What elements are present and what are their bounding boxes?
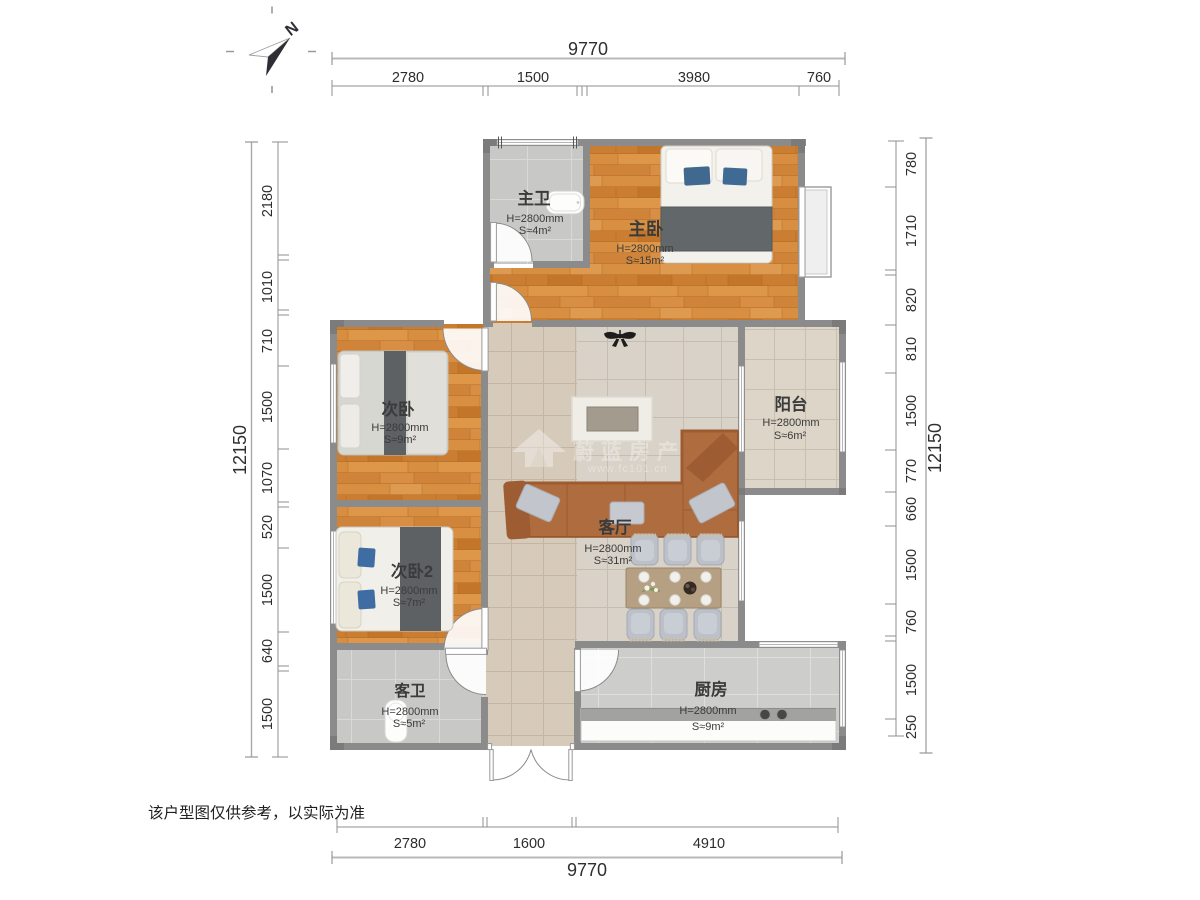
svg-text:主卧: 主卧 <box>629 219 664 239</box>
svg-text:2780: 2780 <box>394 836 426 852</box>
svg-text:阳台: 阳台 <box>775 394 808 414</box>
svg-text:4910: 4910 <box>693 836 725 852</box>
svg-text:次卧: 次卧 <box>382 399 416 419</box>
svg-text:H=2800mm: H=2800mm <box>616 243 673 255</box>
svg-text:640: 640 <box>260 639 276 663</box>
svg-text:12150: 12150 <box>230 425 250 475</box>
svg-text:9770: 9770 <box>567 860 607 880</box>
svg-text:H=2800mm: H=2800mm <box>371 422 428 434</box>
svg-text:H=2800mm: H=2800mm <box>762 417 819 429</box>
svg-text:2780: 2780 <box>392 70 424 86</box>
svg-text:660: 660 <box>904 497 920 521</box>
svg-text:S≈4m²: S≈4m² <box>519 225 552 237</box>
svg-text:760: 760 <box>904 610 920 634</box>
svg-text:1010: 1010 <box>260 271 276 303</box>
svg-text:S≈5m²: S≈5m² <box>393 718 426 730</box>
svg-text:250: 250 <box>904 715 920 739</box>
svg-text:810: 810 <box>904 337 920 361</box>
svg-text:S≈15m²: S≈15m² <box>626 255 665 267</box>
svg-text:H=2800mm: H=2800mm <box>380 585 437 597</box>
svg-text:S≈31m²: S≈31m² <box>594 555 633 567</box>
svg-text:820: 820 <box>904 288 920 312</box>
svg-text:1500: 1500 <box>260 574 276 606</box>
svg-text:www.fc101.cn: www.fc101.cn <box>587 463 668 475</box>
svg-text:该户型图仅供参考，以实际为准: 该户型图仅供参考，以实际为准 <box>148 804 365 822</box>
svg-text:1500: 1500 <box>517 70 549 86</box>
svg-text:3980: 3980 <box>678 70 710 86</box>
svg-text:1070: 1070 <box>260 462 276 494</box>
svg-text:760: 760 <box>807 70 831 86</box>
svg-text:客厅: 客厅 <box>598 517 633 537</box>
svg-text:710: 710 <box>260 329 276 353</box>
svg-text:1500: 1500 <box>260 698 276 730</box>
svg-text:主卫: 主卫 <box>518 188 551 208</box>
svg-text:770: 770 <box>904 459 920 483</box>
svg-text:蔚蓝房产: 蔚蓝房产 <box>573 440 685 464</box>
svg-text:520: 520 <box>260 515 276 539</box>
svg-text:1500: 1500 <box>904 664 920 696</box>
svg-text:S≈6m²: S≈6m² <box>774 430 807 442</box>
svg-text:12150: 12150 <box>925 423 945 473</box>
svg-text:1500: 1500 <box>904 395 920 427</box>
svg-text:S≈7m²: S≈7m² <box>393 597 426 609</box>
svg-text:厨房: 厨房 <box>695 679 728 699</box>
svg-text:S≈9m²: S≈9m² <box>692 721 725 733</box>
svg-text:S≈9m²: S≈9m² <box>384 434 417 446</box>
svg-text:H=2800mm: H=2800mm <box>506 213 563 225</box>
svg-text:1500: 1500 <box>904 549 920 581</box>
svg-text:1600: 1600 <box>513 836 545 852</box>
svg-text:2180: 2180 <box>260 185 276 217</box>
svg-text:客卫: 客卫 <box>394 681 426 700</box>
svg-text:1500: 1500 <box>260 391 276 423</box>
svg-text:次卧2: 次卧2 <box>391 561 433 581</box>
svg-text:1710: 1710 <box>904 215 920 247</box>
svg-text:H=2800mm: H=2800mm <box>679 705 736 717</box>
svg-text:780: 780 <box>904 152 920 176</box>
svg-text:H=2800mm: H=2800mm <box>381 706 438 718</box>
svg-text:H=2800mm: H=2800mm <box>584 543 641 555</box>
svg-text:9770: 9770 <box>568 39 608 59</box>
